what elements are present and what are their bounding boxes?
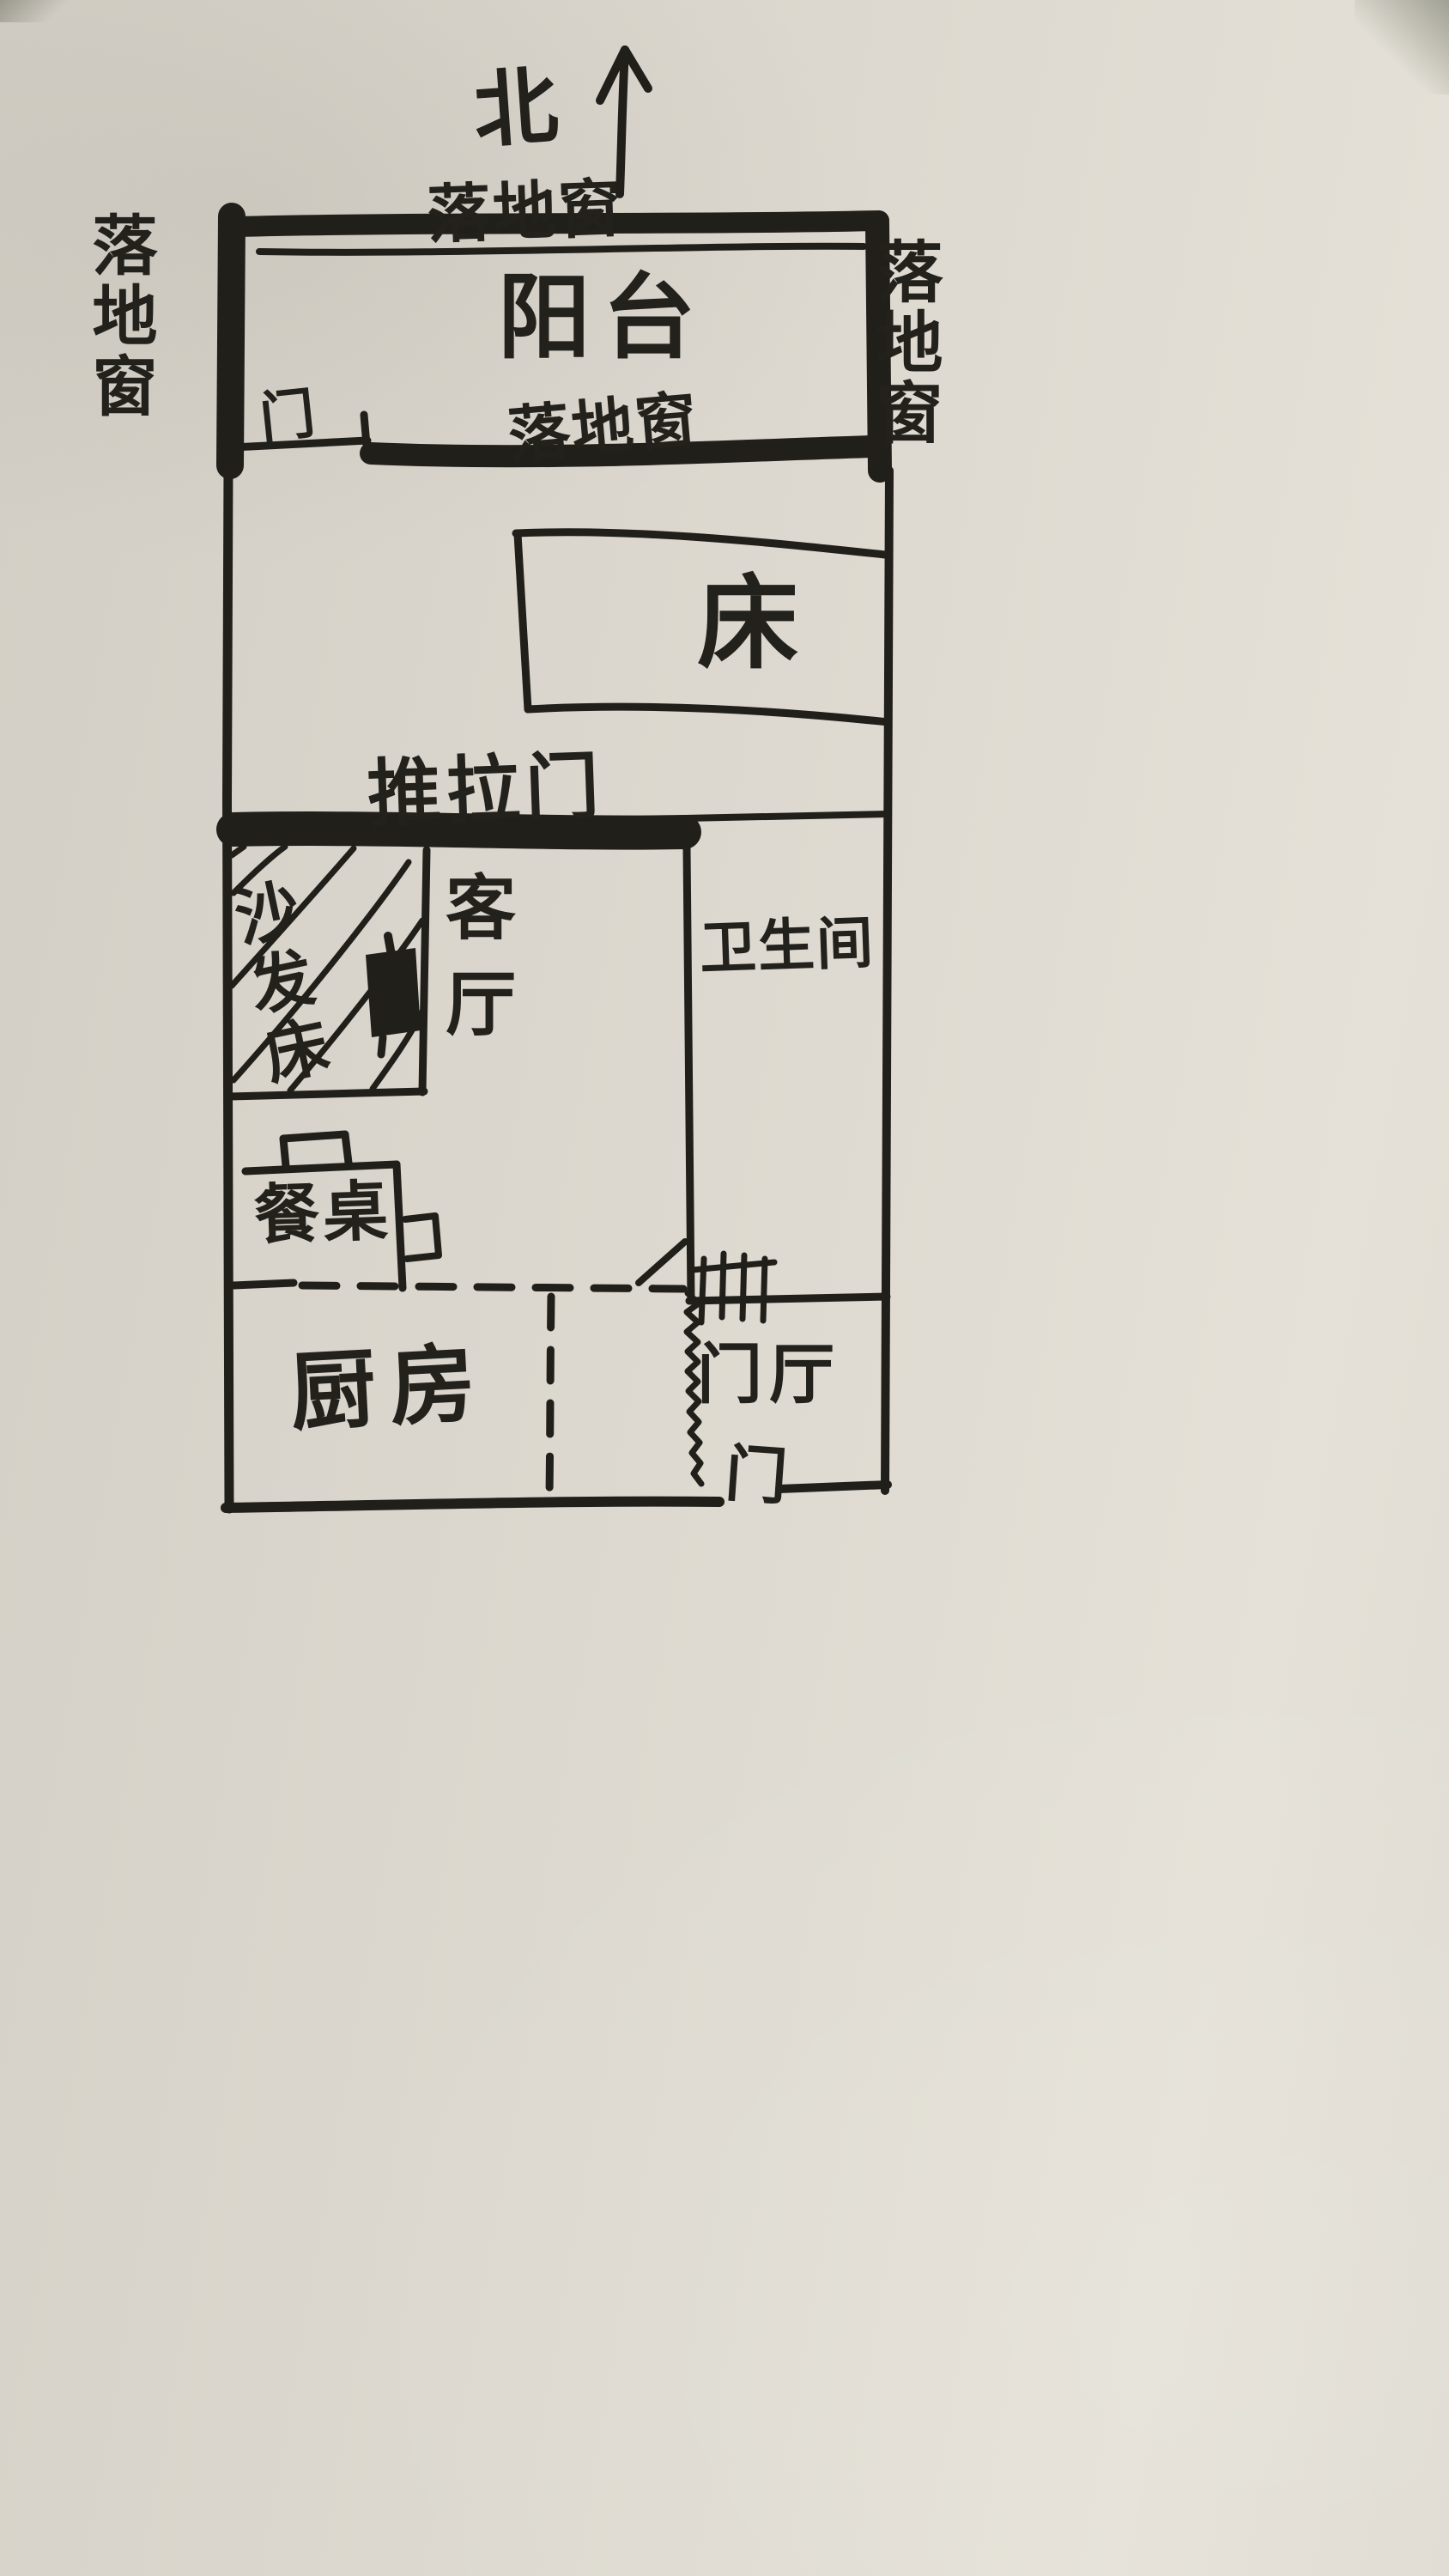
entry-door-label: 门 — [724, 1443, 791, 1510]
balcony-door-label: 门 — [258, 386, 319, 448]
window-label-left: 落地窗 — [86, 211, 153, 422]
balcony-room-label: 阳台 — [498, 271, 707, 366]
floor-plan-drawing — [0, 0, 1449, 2576]
sofa-block-mark — [366, 936, 421, 1054]
entry-door-swing-flick — [639, 1242, 685, 1283]
window-label-top: 落地窗 — [427, 177, 624, 248]
photographed-paper: 北 落地窗 落地窗 落地窗 阳台 门 落地窗 床 推拉门 沙发床 客厅 卫生间 … — [0, 0, 1449, 2576]
window-label-right: 落地窗 — [869, 237, 937, 448]
balcony-door-tick — [364, 415, 367, 455]
entry-door-ticks — [692, 1254, 774, 1322]
north-label: 北 — [471, 64, 563, 156]
dining-chair-right — [405, 1216, 439, 1259]
living-room-label: 客厅 — [438, 871, 510, 1063]
entry-hall-label: 门厅 — [697, 1341, 841, 1408]
entry-walls — [779, 1485, 888, 1489]
bathroom-label: 卫生间 — [699, 914, 876, 977]
sliding-door-label: 推拉门 — [367, 750, 606, 833]
dining-table-label: 餐桌 — [253, 1177, 393, 1249]
bathroom-top-wall — [685, 814, 888, 818]
window-label-bottom: 落地窗 — [506, 388, 701, 468]
bed-label: 床 — [697, 572, 800, 675]
dining-chair-top — [283, 1134, 349, 1166]
kitchen-label: 厨房 — [288, 1340, 491, 1437]
